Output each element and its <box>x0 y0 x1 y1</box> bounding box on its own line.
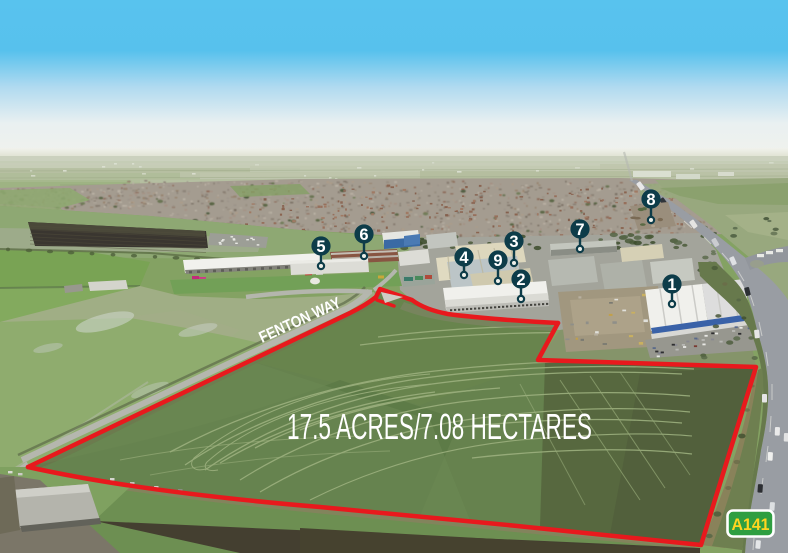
svg-text:4: 4 <box>459 249 469 267</box>
svg-text:1: 1 <box>667 276 676 294</box>
svg-text:A141: A141 <box>732 515 770 534</box>
svg-text:6: 6 <box>359 226 368 244</box>
svg-text:7: 7 <box>575 221 584 239</box>
svg-text:2: 2 <box>516 271 525 289</box>
svg-text:5: 5 <box>316 238 325 256</box>
svg-text:3: 3 <box>509 233 518 251</box>
svg-text:8: 8 <box>646 191 655 209</box>
svg-text:9: 9 <box>493 252 502 270</box>
svg-text:17.5 ACRES/7.08 HECTARES: 17.5 ACRES/7.08 HECTARES <box>287 406 592 447</box>
